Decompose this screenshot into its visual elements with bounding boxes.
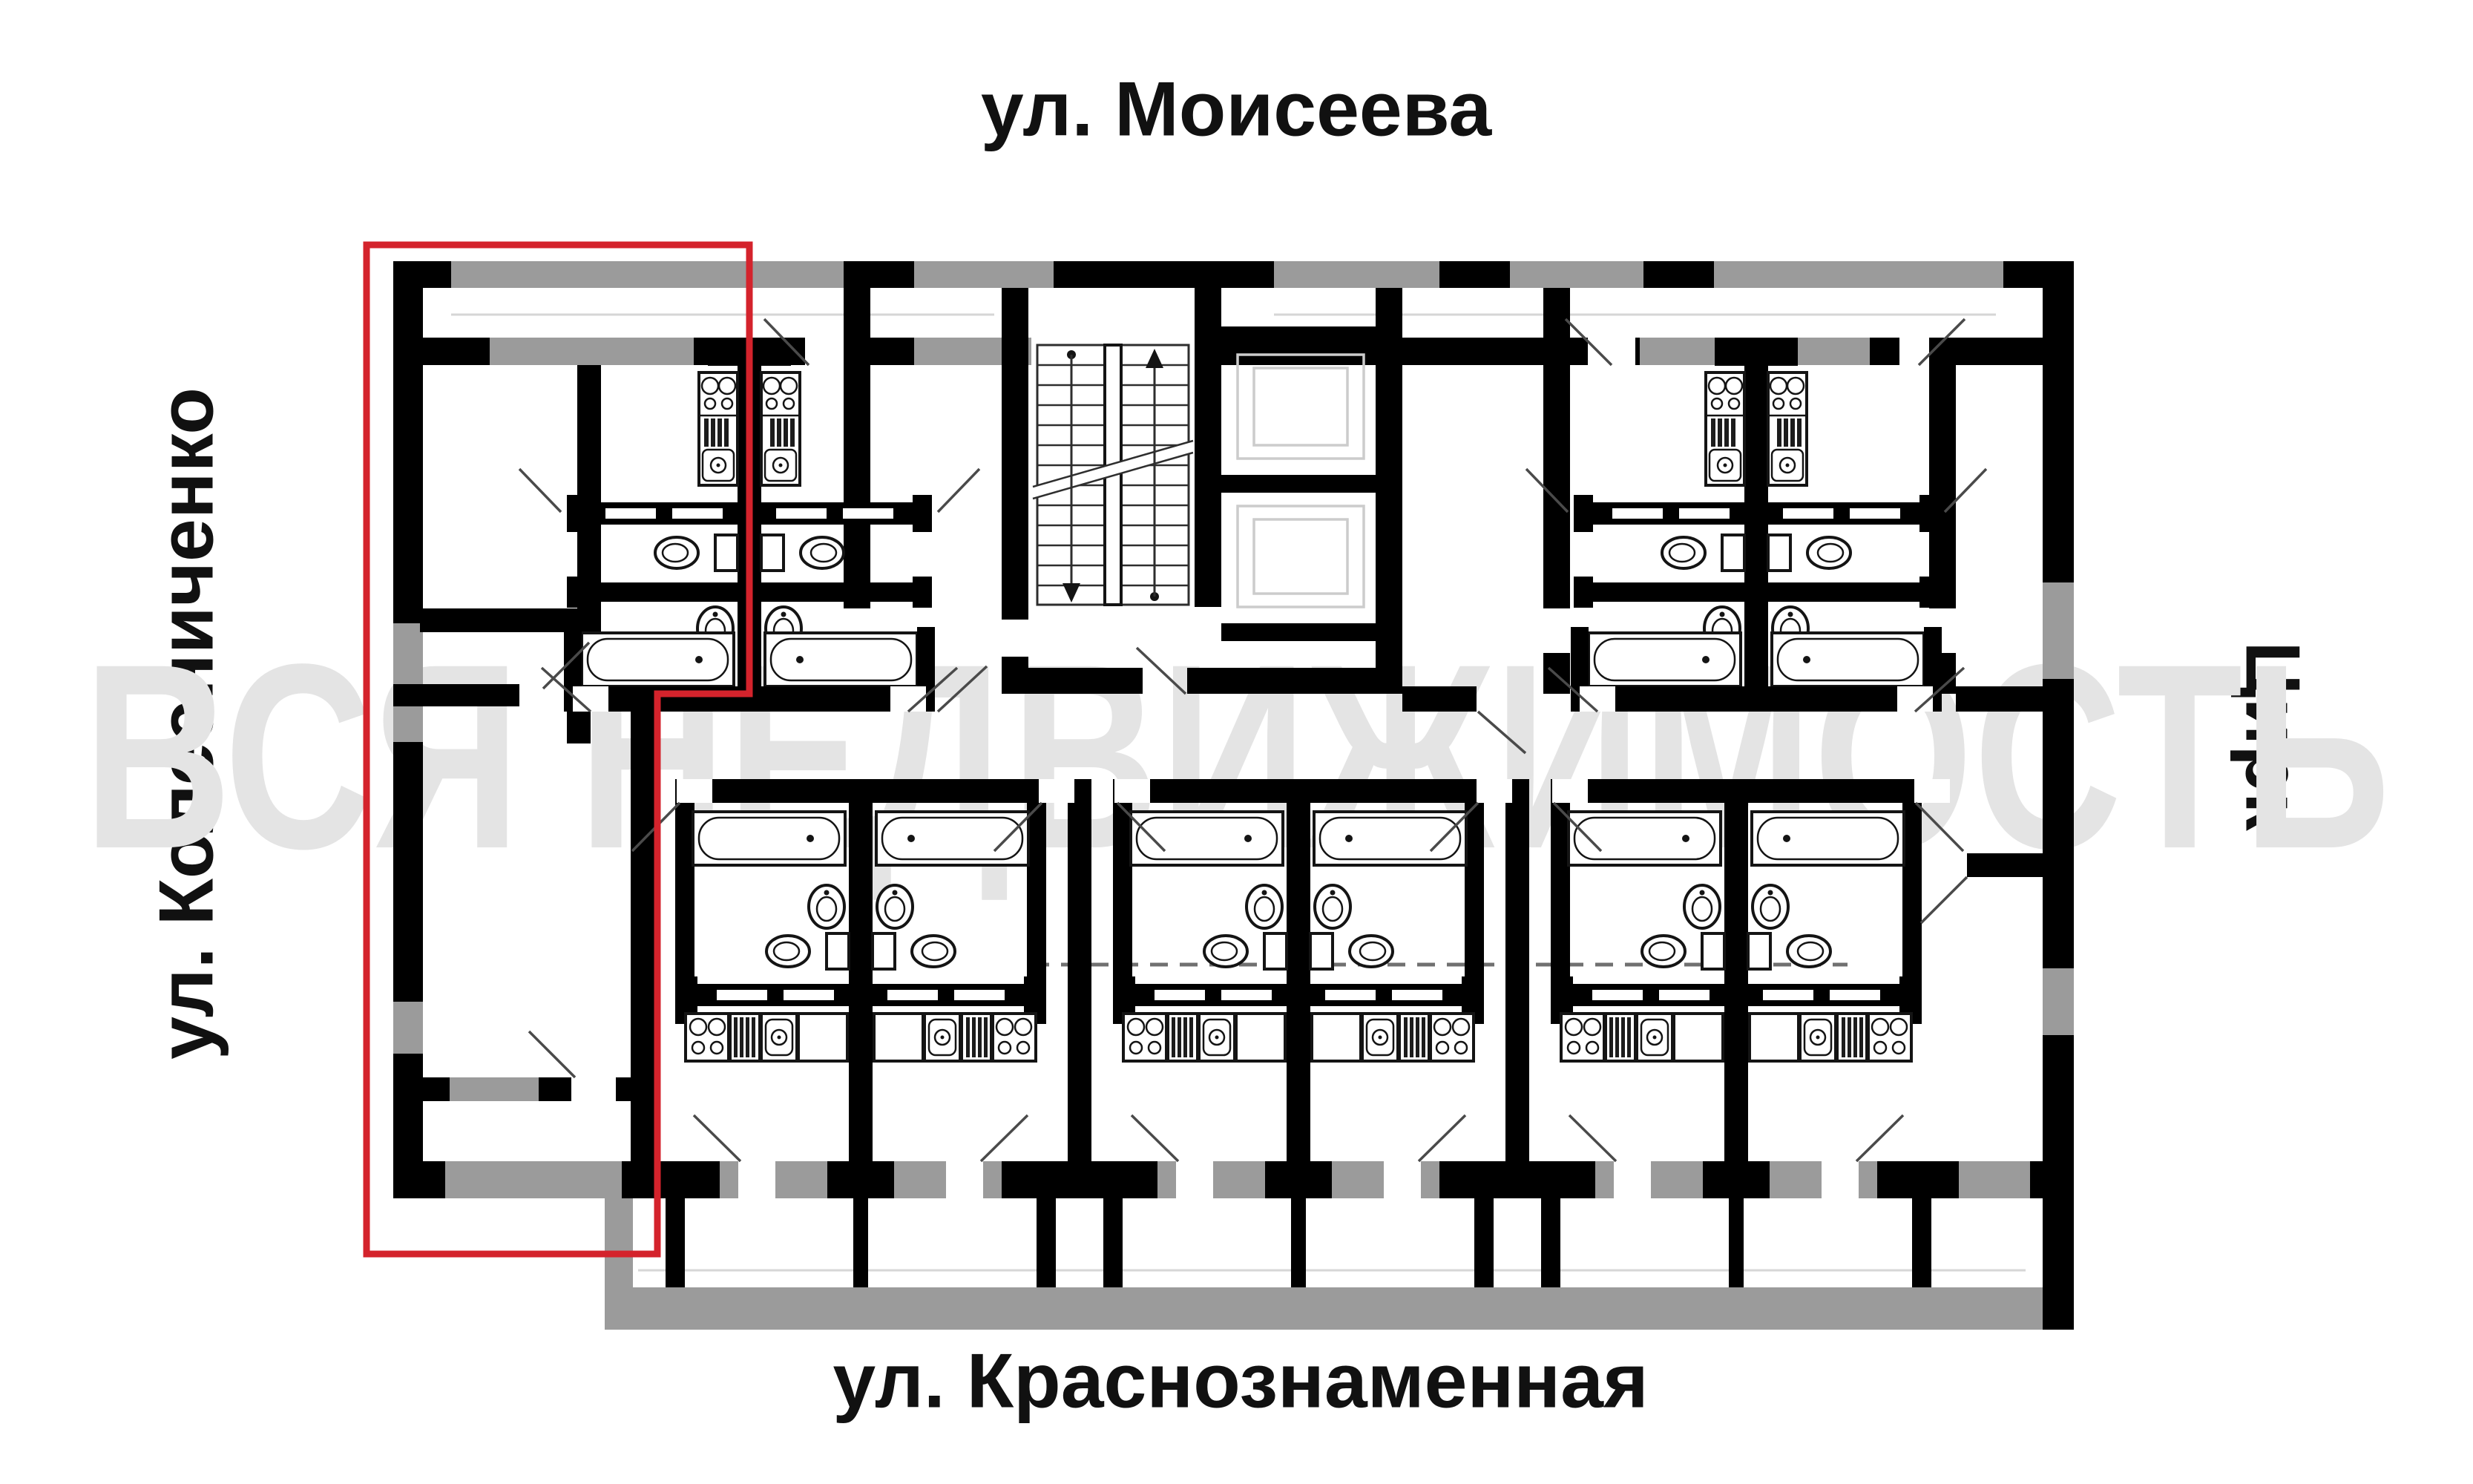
bottom-middle-apartment-stack: [1113, 779, 1484, 1161]
bottom-left-apartment-stack: [675, 779, 1046, 1161]
top-right-apartment-stack: [1571, 338, 1942, 712]
floor-plan-page: ул. Моисеева ул. Колесниченко Цирк ул. К…: [0, 0, 2473, 1484]
floor-plan: ВСЯ НЕДВИЖИМОСТЬ: [0, 0, 2473, 1484]
bottom-right-apartment-stack: [1551, 779, 1922, 1161]
